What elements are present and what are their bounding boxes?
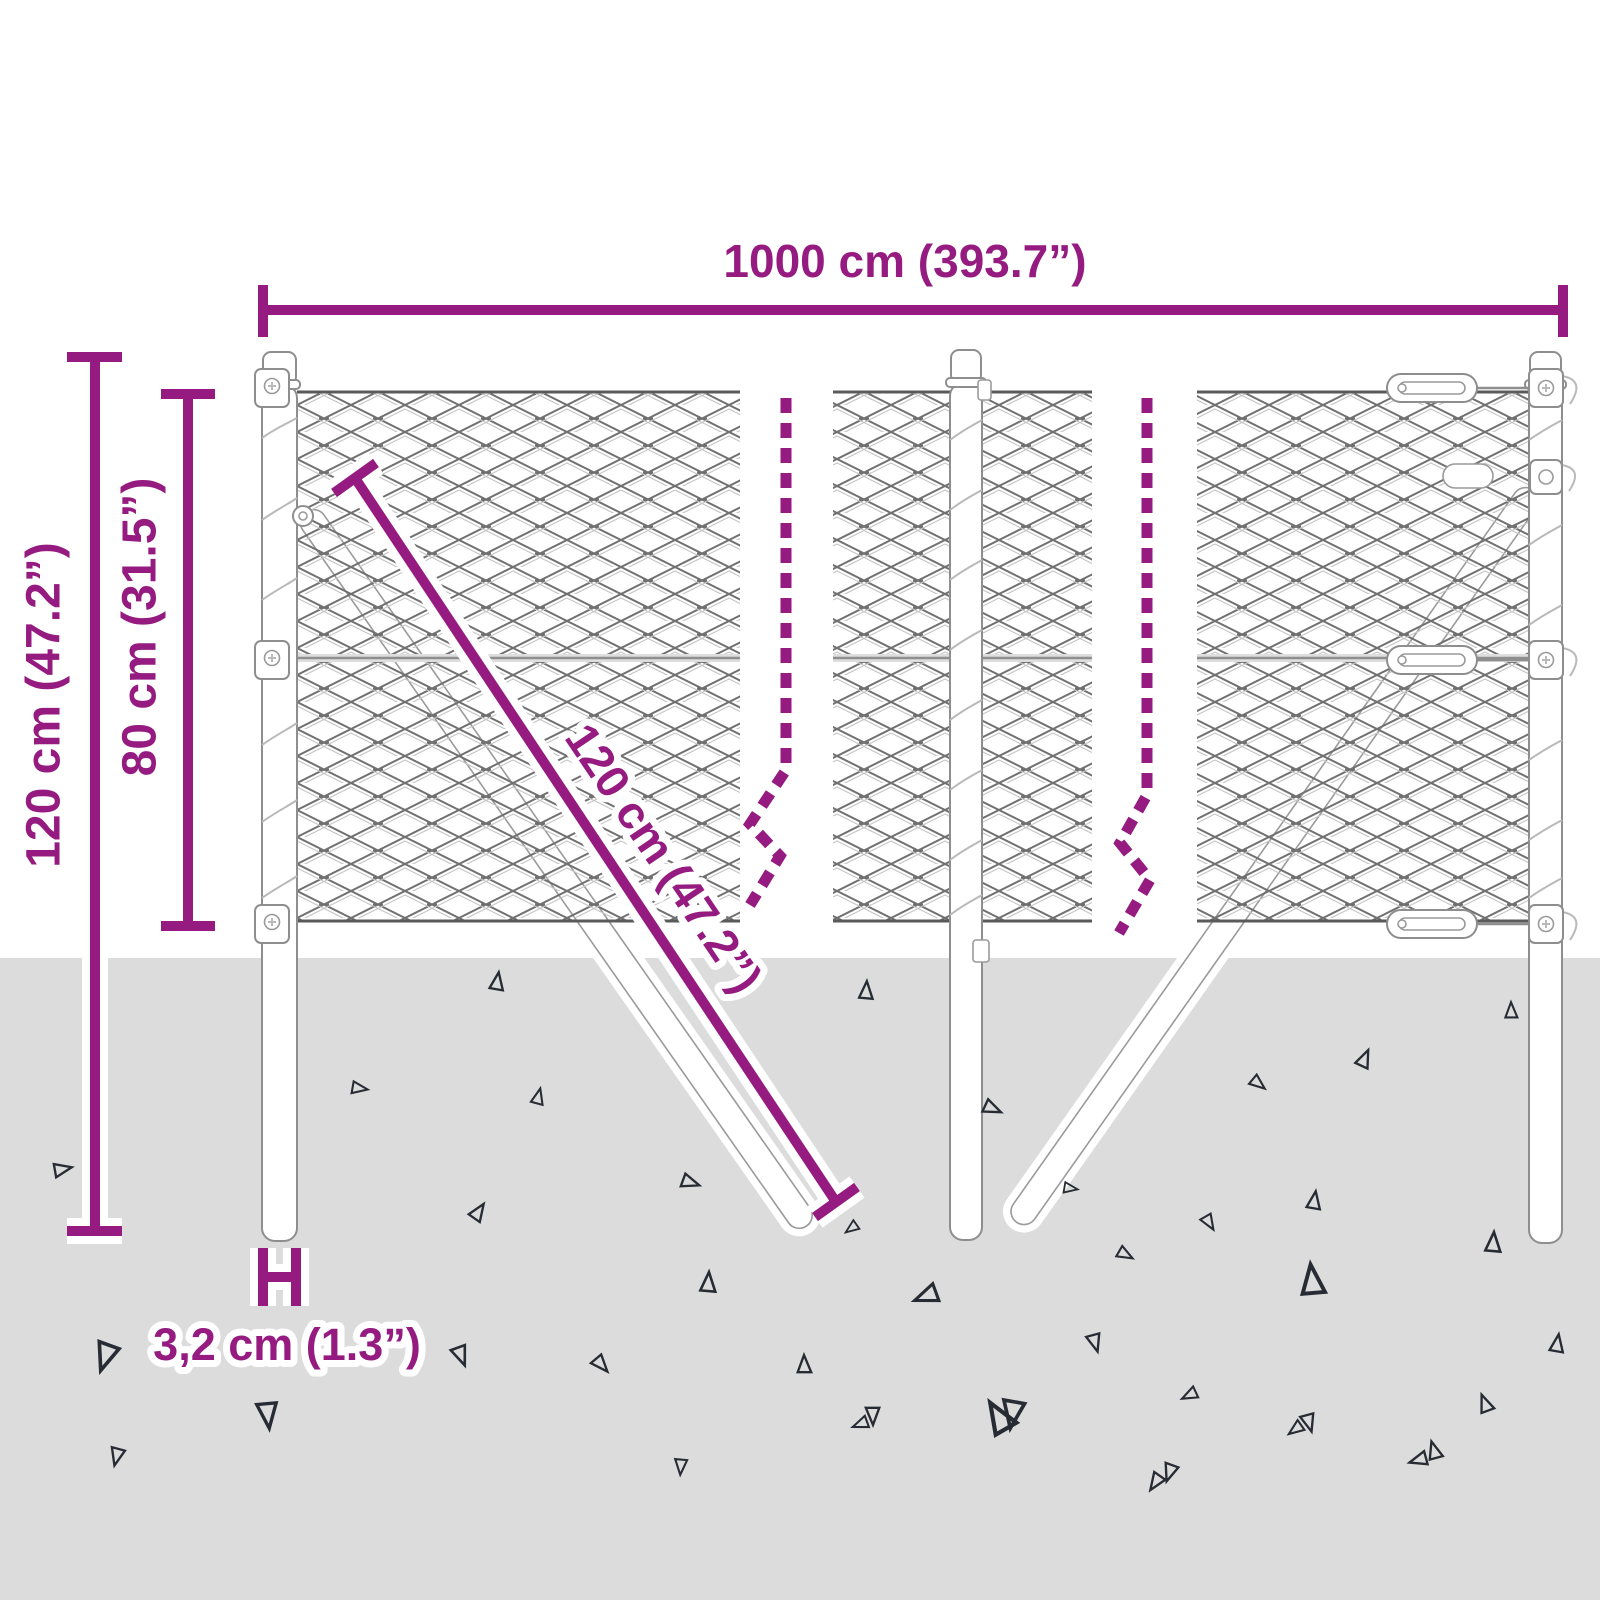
dimension-mesh-height: 80 cm (31.5”) <box>114 394 216 926</box>
middle-post-clip-top <box>978 380 991 400</box>
turnbuckle-stay <box>1443 464 1493 488</box>
label-mesh-height: 80 cm (31.5”) <box>114 478 167 777</box>
left-post <box>259 352 300 1241</box>
label-post-height: 120 cm (47.2”) <box>18 542 71 868</box>
middle-post-clip-bottom <box>973 940 989 962</box>
label-post-diameter: 3,2 cm (1.3”) <box>153 1319 421 1370</box>
fence-dimension-diagram: 1000 cm (393.7”) 120 cm (47.2”) 80 cm (3… <box>0 0 1600 1600</box>
label-total-width: 1000 cm (393.7”) <box>723 235 1086 287</box>
break-line-left <box>750 398 786 905</box>
diagram-svg: 1000 cm (393.7”) 120 cm (47.2”) 80 cm (3… <box>0 0 1600 1600</box>
break-line-right <box>1119 398 1150 933</box>
ground <box>0 958 1600 1600</box>
dimension-total-width: 1000 cm (393.7”) <box>263 235 1563 337</box>
